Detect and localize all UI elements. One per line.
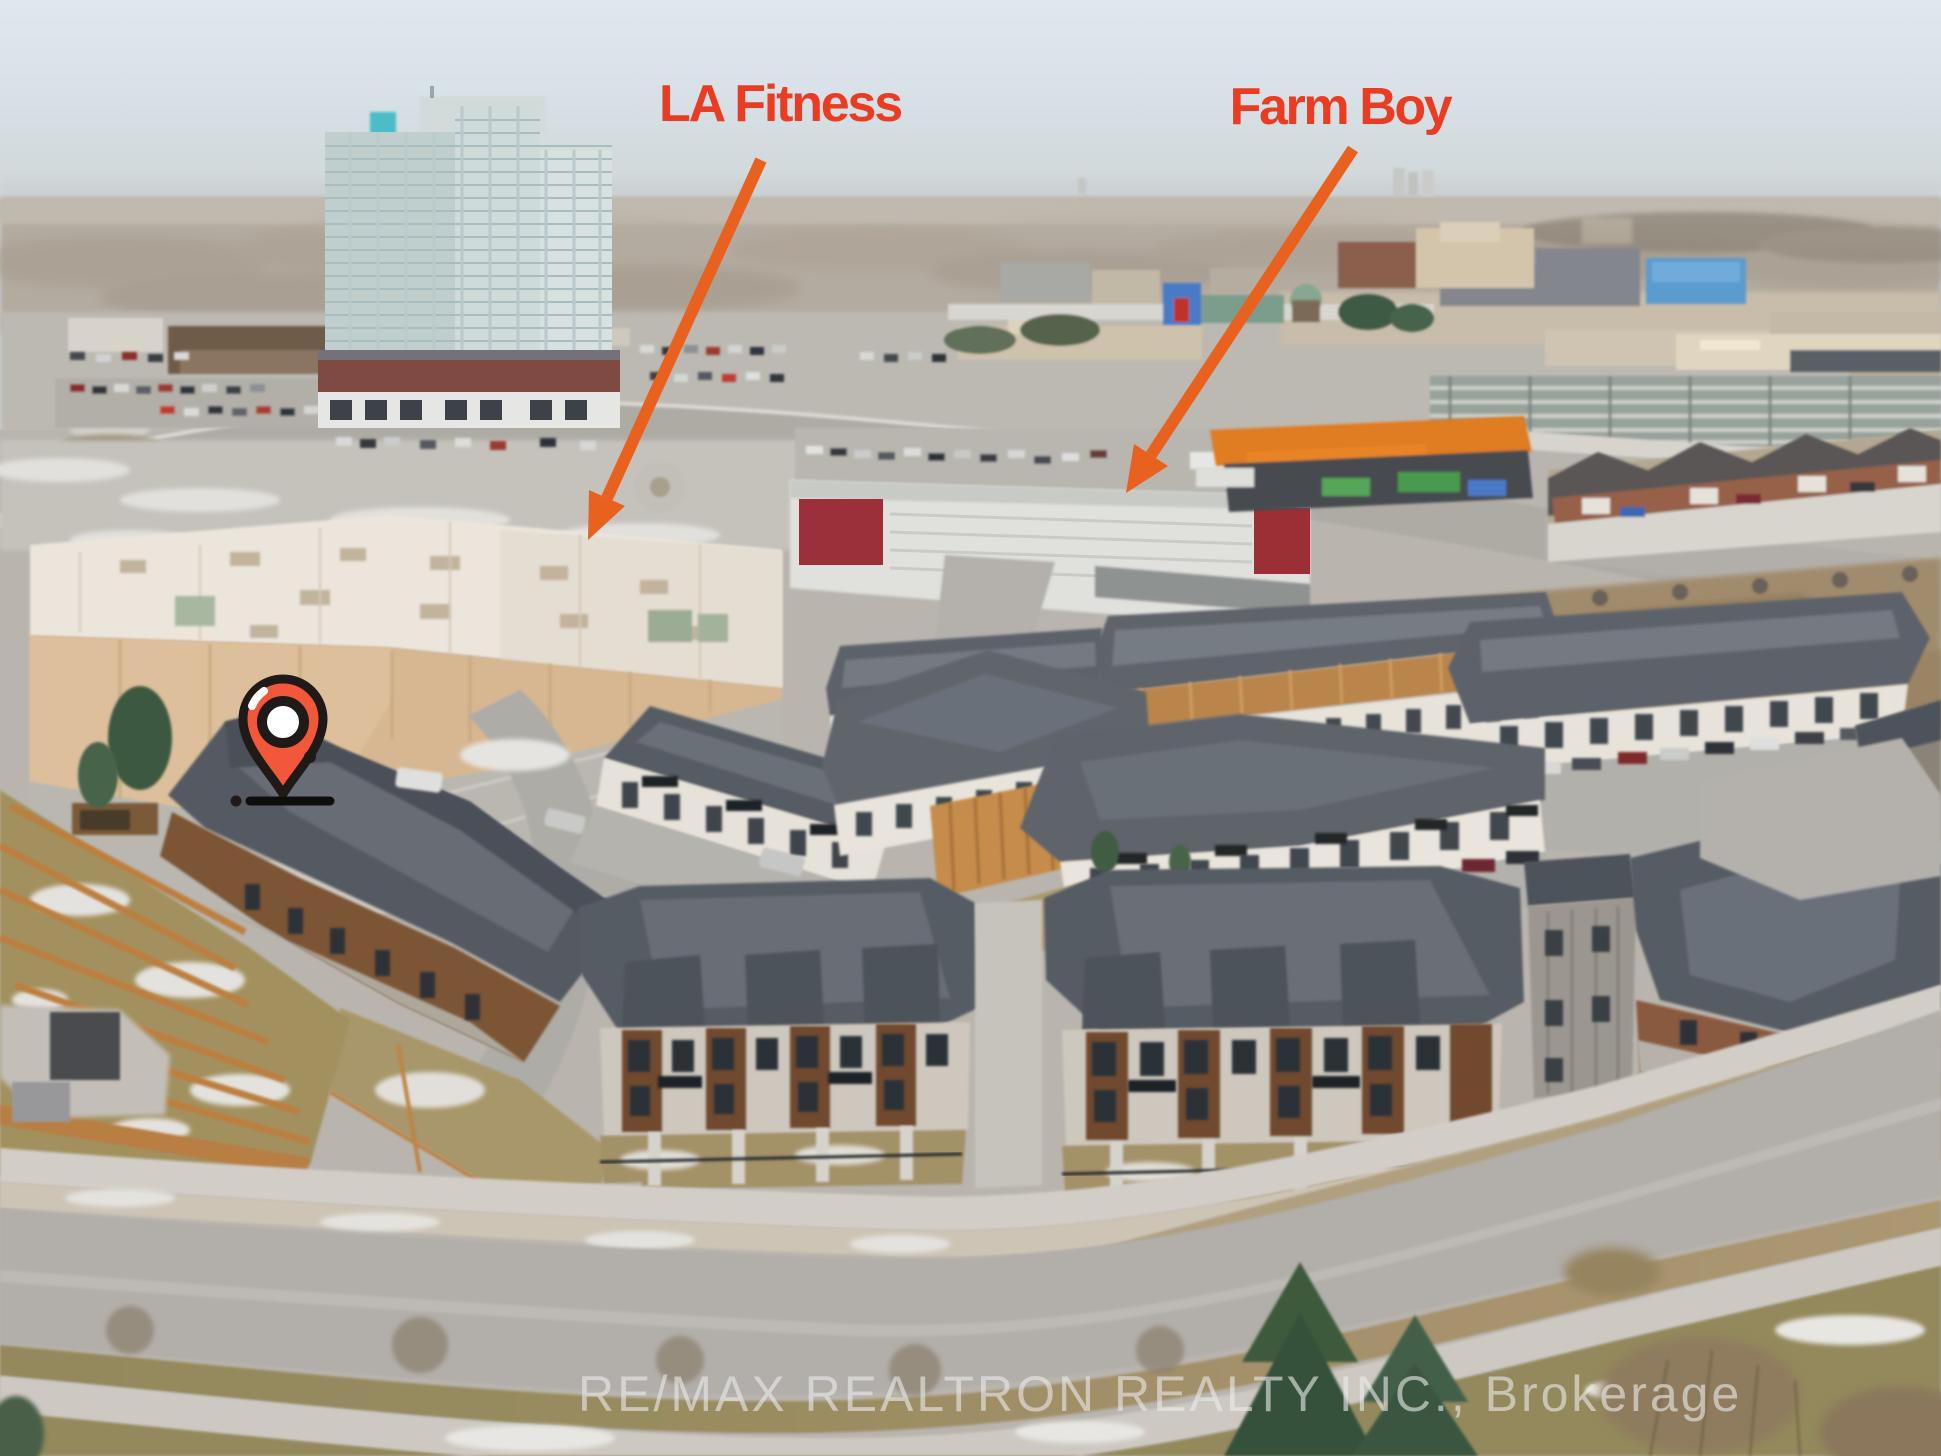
svg-text:Farm Boy: Farm Boy	[1230, 78, 1453, 136]
svg-text:LA Fitness: LA Fitness	[659, 75, 901, 133]
svg-text:RE/MAX REALTRON REALTY INC., B: RE/MAX REALTRON REALTY INC., Brokerage	[578, 1366, 1742, 1422]
